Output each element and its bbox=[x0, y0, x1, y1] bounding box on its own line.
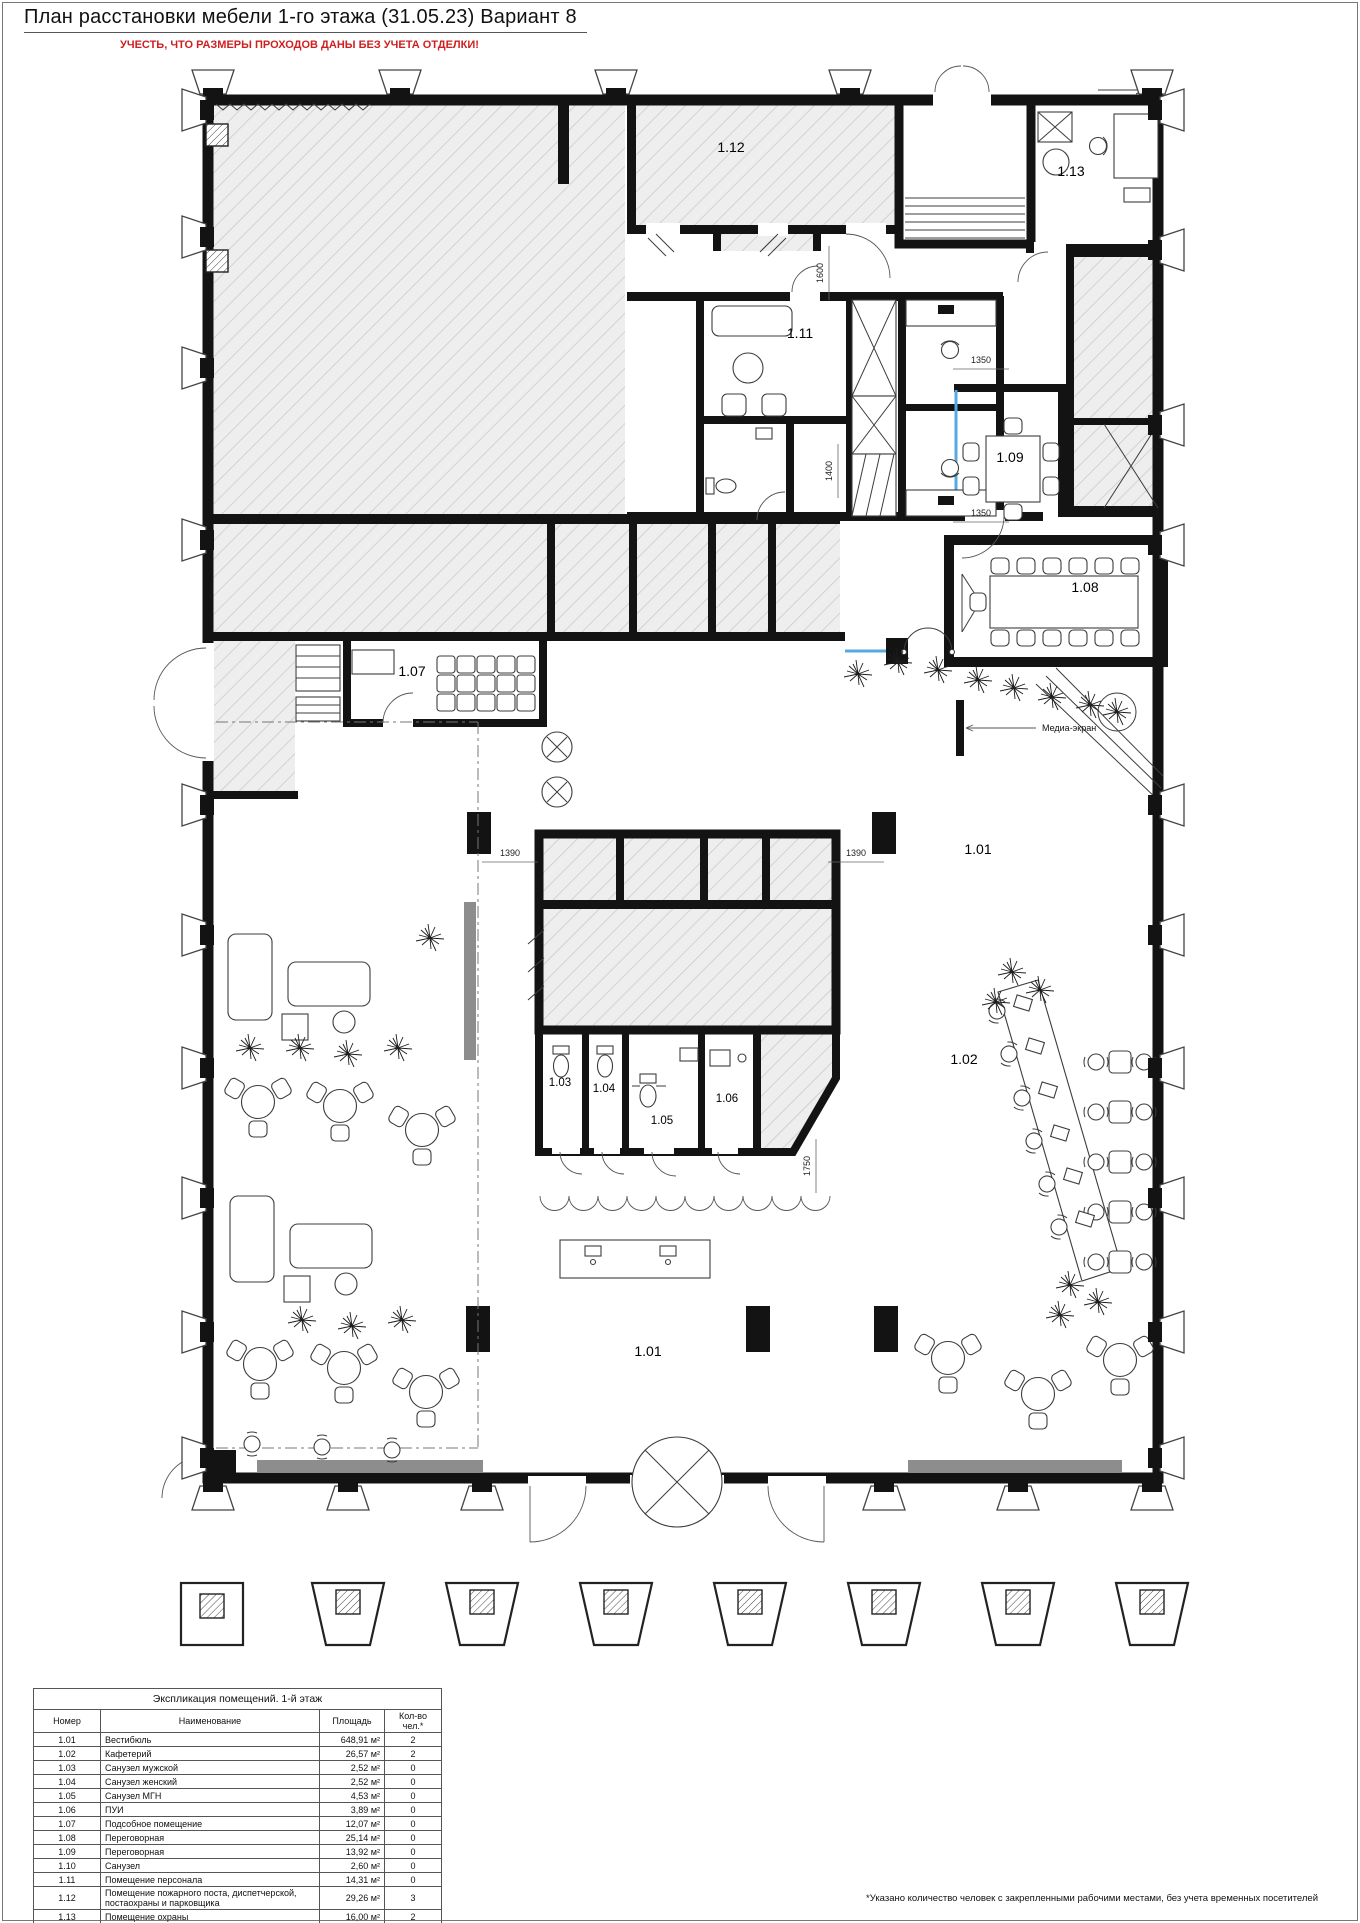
room-label: 1.09 bbox=[996, 449, 1023, 465]
room-label: 1.02 bbox=[950, 1051, 977, 1067]
table-row: 1.03Санузел мужской2,52 м²0 bbox=[34, 1761, 442, 1775]
media-screen bbox=[956, 700, 964, 756]
table-row: 1.06ПУИ3,89 м²0 bbox=[34, 1803, 442, 1817]
dimension-label: 1390 bbox=[846, 848, 866, 858]
room-schedule: Экспликация помещений. 1-й этаж Номер На… bbox=[33, 1688, 442, 1923]
dimension-label: 1750 bbox=[802, 1156, 812, 1176]
floor-plan: 1600135014001350139013901750 1.121.131.1… bbox=[0, 0, 1360, 1680]
title-block: План расстановки мебели 1-го этажа (31.0… bbox=[24, 6, 587, 51]
media-screen-annotation: Медиа-экран bbox=[1042, 723, 1096, 733]
warning-note: УЧЕСТЬ, ЧТО РАЗМЕРЫ ПРОХОДОВ ДАНЫ БЕЗ УЧ… bbox=[120, 39, 587, 51]
table-title: Экспликация помещений. 1-й этаж bbox=[34, 1689, 442, 1710]
table-row: 1.05Санузел МГН4,53 м²0 bbox=[34, 1789, 442, 1803]
footnote: *Указано количество человек с закрепленн… bbox=[866, 1893, 1318, 1904]
dimension-label: 1600 bbox=[815, 263, 825, 283]
room-label: 1.04 bbox=[593, 1083, 616, 1095]
col-area: Площадь bbox=[320, 1710, 385, 1733]
table-row: 1.10Санузел2,60 м²0 bbox=[34, 1859, 442, 1873]
room-label: 1.08 bbox=[1071, 579, 1098, 595]
room-label: 1.03 bbox=[549, 1077, 571, 1089]
dimension-label: 1390 bbox=[500, 848, 520, 858]
table-row: 1.07Подсобное помещение12,07 м²0 bbox=[34, 1817, 442, 1831]
table-row: 1.08Переговорная25,14 м²0 bbox=[34, 1831, 442, 1845]
dimension-label: 1350 bbox=[971, 508, 991, 518]
room-label: 1.12 bbox=[717, 139, 744, 155]
room-label: 1.01 bbox=[634, 1343, 661, 1359]
room-label: 1.07 bbox=[398, 663, 425, 679]
table-row: 1.04Санузел женский2,52 м²0 bbox=[34, 1775, 442, 1789]
col-people: Кол-во чел.* bbox=[385, 1710, 442, 1733]
table-row: 1.09Переговорная13,92 м²0 bbox=[34, 1845, 442, 1859]
col-name: Наименование bbox=[101, 1710, 320, 1733]
table-row: 1.12Помещение пожарного поста, диспетчер… bbox=[34, 1887, 442, 1910]
column-markers-row bbox=[181, 1583, 1188, 1645]
room-schedule-table: Экспликация помещений. 1-й этаж Номер На… bbox=[33, 1688, 442, 1923]
table-row: 1.13Помещение охраны16,00 м²2 bbox=[34, 1910, 442, 1923]
room-label: 1.05 bbox=[651, 1115, 673, 1127]
room-label: 1.13 bbox=[1057, 163, 1084, 179]
dimension-label: 1400 bbox=[824, 461, 834, 481]
room-label: 1.11 bbox=[787, 325, 813, 341]
room-label: 1.06 bbox=[716, 1093, 738, 1105]
table-row: 1.02Кафетерий26,57 м²2 bbox=[34, 1747, 442, 1761]
room-label: 1.01 bbox=[964, 841, 991, 857]
table-row: 1.01Вестибюль648,91 м²2 bbox=[34, 1733, 442, 1747]
table-header-row: Номер Наименование Площадь Кол-во чел.* bbox=[34, 1710, 442, 1733]
page-title: План расстановки мебели 1-го этажа (31.0… bbox=[24, 6, 587, 33]
dimension-label: 1350 bbox=[971, 355, 991, 365]
drawing-sheet: План расстановки мебели 1-го этажа (31.0… bbox=[0, 0, 1360, 1923]
col-number: Номер bbox=[34, 1710, 101, 1733]
table-row: 1.11Помещение персонала14,31 м²0 bbox=[34, 1873, 442, 1887]
